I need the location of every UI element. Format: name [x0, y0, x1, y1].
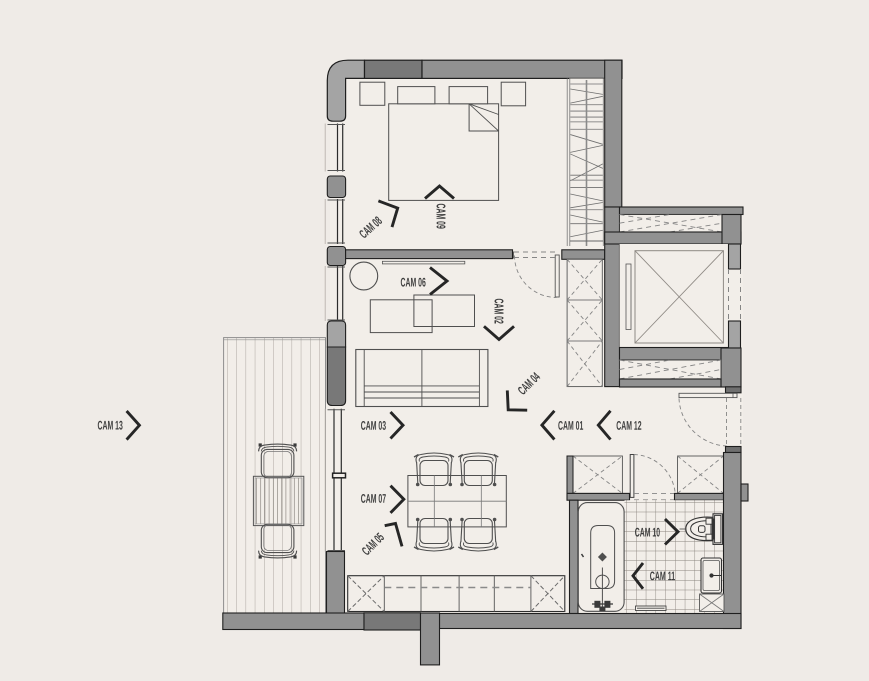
svg-text:CAM 09: CAM 09	[434, 204, 448, 229]
svg-text:CAM 06: CAM 06	[400, 276, 425, 290]
svg-text:CAM 11: CAM 11	[650, 569, 675, 583]
svg-text:CAM 03: CAM 03	[361, 419, 386, 433]
svg-text:CAM 07: CAM 07	[361, 492, 386, 506]
svg-text:CAM 13: CAM 13	[97, 419, 122, 433]
svg-text:CAM 01: CAM 01	[558, 419, 583, 433]
svg-text:CAM 10: CAM 10	[635, 526, 660, 540]
svg-text:CAM 12: CAM 12	[616, 419, 641, 433]
svg-text:CAM 02: CAM 02	[492, 299, 506, 324]
